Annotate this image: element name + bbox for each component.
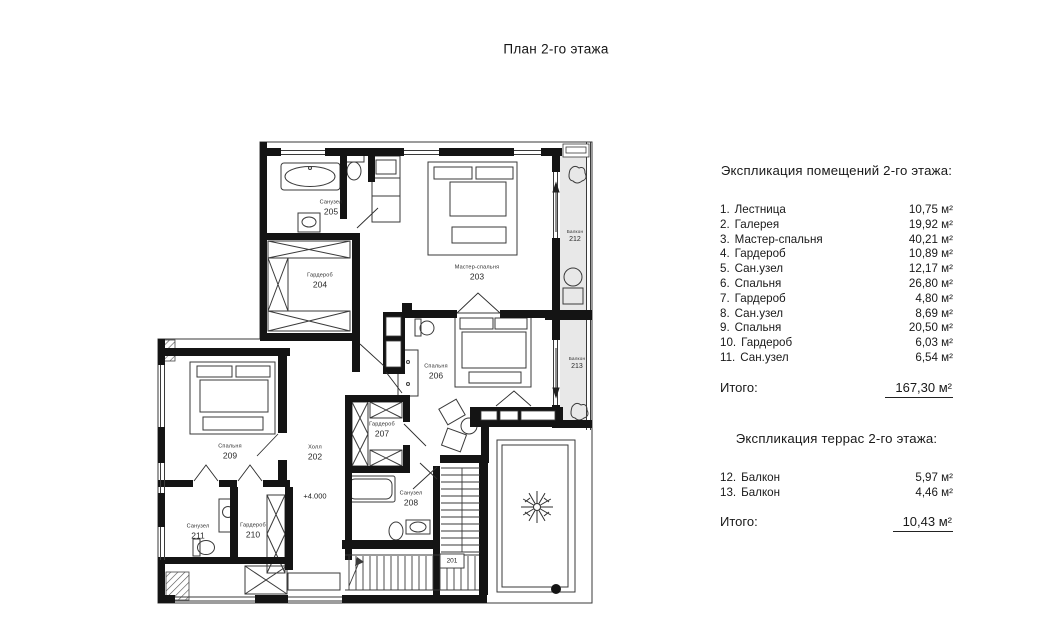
room-name-label: Гардероб [741,336,792,351]
table-row: 10. Гардероб 6,03 м² [720,336,953,351]
room-name: Холл [308,444,322,450]
total-label: Итого: [720,514,758,529]
room-area-value: 4,80 м² [915,292,953,307]
room-label-207: Гардероб 207 [369,421,395,438]
explication-rooms-table: 1. Лестница 10,75 м² 2. Галерея 19,92 м²… [720,203,953,366]
room-area-value: 20,50 м² [909,321,953,336]
room-name: Гардероб [240,522,266,528]
bathtub-205 [281,163,340,190]
table-row: 8. Сан.узел 8,69 м² [720,307,953,322]
sink-208 [406,520,430,534]
cabinet-203 [372,156,400,222]
rooms-total-row: Итого: 167,30 м² [720,380,953,398]
floor-plan-page: План 2-го этажа [0,0,1054,638]
room-name-label: Сан.узел [740,351,788,366]
table-row: 7. Гардероб 4,80 м² [720,292,953,307]
level-mark: +4.000 [303,492,326,501]
room-area-value: 6,54 м² [915,351,953,366]
room-index-label: 9. [720,321,730,336]
explication-rooms-header: Экспликация помещений 2-го этажа: [720,163,953,178]
room-label-211: Санузел 211 [187,523,210,540]
room-index-label: 1. [720,203,730,218]
room-name: Санузел [187,523,210,529]
room-area-value: 26,80 м² [909,277,953,292]
room-number: 213 [569,363,585,371]
courtyard [497,440,575,594]
table-row: 3. Мастер-спальня 40,21 м² [720,233,953,248]
room-area-value: 12,17 м² [909,262,953,277]
windows [161,151,558,602]
room-label-205: Санузел 205 [320,199,343,216]
table-row: 4. Гардероб 10,89 м² [720,247,953,262]
table-row: 11. Сан.узел 6,54 м² [720,351,953,366]
room-number: 211 [187,531,210,540]
room-number: 204 [307,280,333,289]
room-index-label: 4. [720,247,730,262]
room-index-label: 11. [720,351,735,366]
staircase [345,468,480,590]
room-number: 201 [447,558,458,565]
room-name: Санузел [400,490,423,496]
armchair-206 [415,319,434,336]
room-name-label: Спальня [735,321,782,336]
room-area-value: 10,75 м² [909,203,953,218]
terraces-total-value: 10,43 м² [893,514,953,532]
room-name-label: Спальня [735,277,782,292]
terraces-total-row: Итого: 10,43 м² [720,514,953,532]
room-index-label: 2. [720,218,730,233]
tree-icon [521,491,553,523]
total-label: Итого: [720,380,758,395]
room-label-212: Балкон 212 [567,230,583,244]
room-area-value: 4,46 м² [915,486,953,501]
room-index-label: 12. [720,471,736,486]
room-number: 212 [567,236,583,244]
bed-209 [190,362,275,434]
room-label-206: Спальня 206 [424,363,448,380]
room-name-label: Сан.узел [735,262,783,277]
room-area-value: 19,92 м² [909,218,953,233]
room-index-label: 7. [720,292,730,307]
room-number: 209 [218,451,242,460]
room-area-value: 8,69 м² [915,307,953,322]
courtyard-dot [551,584,561,594]
wardrobe-210 [245,495,287,594]
room-label-209: Спальня 209 [218,443,242,460]
room-name-label: Сан.узел [735,307,783,322]
table-row: 5. Сан.узел 12,17 м² [720,262,953,277]
room-name-label: Мастер-спальня [735,233,823,248]
rooms-total-value: 167,30 м² [885,380,953,398]
room-area-value: 40,21 м² [909,233,953,248]
room-area-value: 6,03 м² [915,336,953,351]
room-index-label: 8. [720,307,730,322]
room-index-label: 3. [720,233,730,248]
room-label-204: Гардероб 204 [307,272,333,289]
table-row: 2. Галерея 19,92 м² [720,218,953,233]
room-label-203: Мастер-спальня 203 [455,264,500,281]
room-label-210: Гардероб 210 [240,522,266,539]
room-name-label: Гардероб [735,247,786,262]
explication-terraces-table: 12. Балкон 5,97 м² 13. Балкон 4,46 м² [720,471,953,501]
room-number: 210 [240,530,266,539]
room-number: 205 [320,207,343,216]
explication-panel: Экспликация помещений 2-го этажа: 1. Лес… [720,163,953,532]
table-row: 12. Балкон 5,97 м² [720,471,953,486]
toilet-211 [193,539,215,556]
room-index-label: 10. [720,336,736,351]
room-name: Санузел [320,199,343,205]
room-name-label: Балкон [741,471,780,486]
room-name-label: Балкон [741,486,780,501]
room-label-213: Балкон 213 [569,357,585,371]
room-area-value: 10,89 м² [909,247,953,262]
room-label-208: Санузел 208 [400,490,423,507]
bed-203 [428,162,517,255]
room-number: 207 [369,429,395,438]
room-name: Гардероб [307,272,333,278]
bathtub-208 [346,476,395,502]
room-name: Спальня [218,443,242,449]
bed-206 [455,313,531,387]
explication-terraces-header: Экспликация террас 2-го этажа: [720,431,953,446]
room-name: Спальня [424,363,448,369]
sink-205 [298,213,320,232]
room-label-201: 201 [447,558,458,565]
balcony-fills [560,148,587,420]
table-row: 9. Спальня 20,50 м² [720,321,953,336]
room-number: 202 [308,452,322,461]
room-index-label: 5. [720,262,730,277]
room-index-label: 13. [720,486,736,501]
room-name: Балкон [569,357,585,362]
room-number: 206 [424,371,448,380]
room-name: Мастер-спальня [455,264,500,270]
bench-hall [288,573,340,590]
room-index-label: 6. [720,277,730,292]
room-label-202: Холл 202 [308,444,322,461]
room-name-label: Гардероб [735,292,786,307]
table-row: 1. Лестница 10,75 м² [720,203,953,218]
room-number: 203 [455,272,500,281]
room-area-value: 5,97 м² [915,471,953,486]
room-number: 208 [400,498,423,507]
table-row: 13. Балкон 4,46 м² [720,486,953,501]
room-name: Балкон [567,230,583,235]
room-name: Гардероб [369,421,395,427]
room-name-label: Лестница [735,203,786,218]
room-name-label: Галерея [735,218,779,233]
table-row: 6. Спальня 26,80 м² [720,277,953,292]
